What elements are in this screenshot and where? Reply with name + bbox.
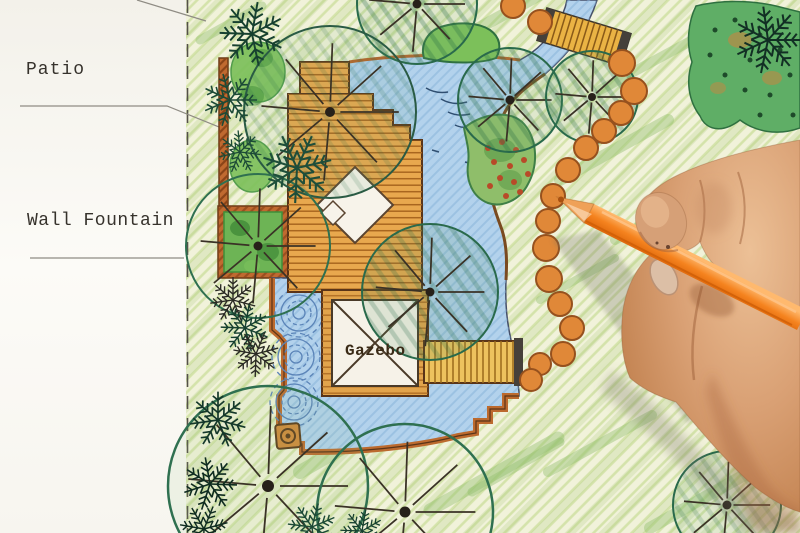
- label-patio: Patio: [26, 61, 85, 81]
- garden-plan-drawing: [0, 0, 800, 533]
- tree-symbol: [244, 26, 416, 198]
- label-gazebo: Gazebo: [345, 343, 406, 361]
- tree-symbol: [362, 224, 498, 360]
- knuckle-shading: [696, 182, 732, 234]
- pencil-point: [558, 197, 564, 203]
- label-wall-fountain: Wall Fountain: [27, 212, 174, 232]
- garden-plan-photo: Patio Wall Fountain Gazebo: [0, 0, 800, 533]
